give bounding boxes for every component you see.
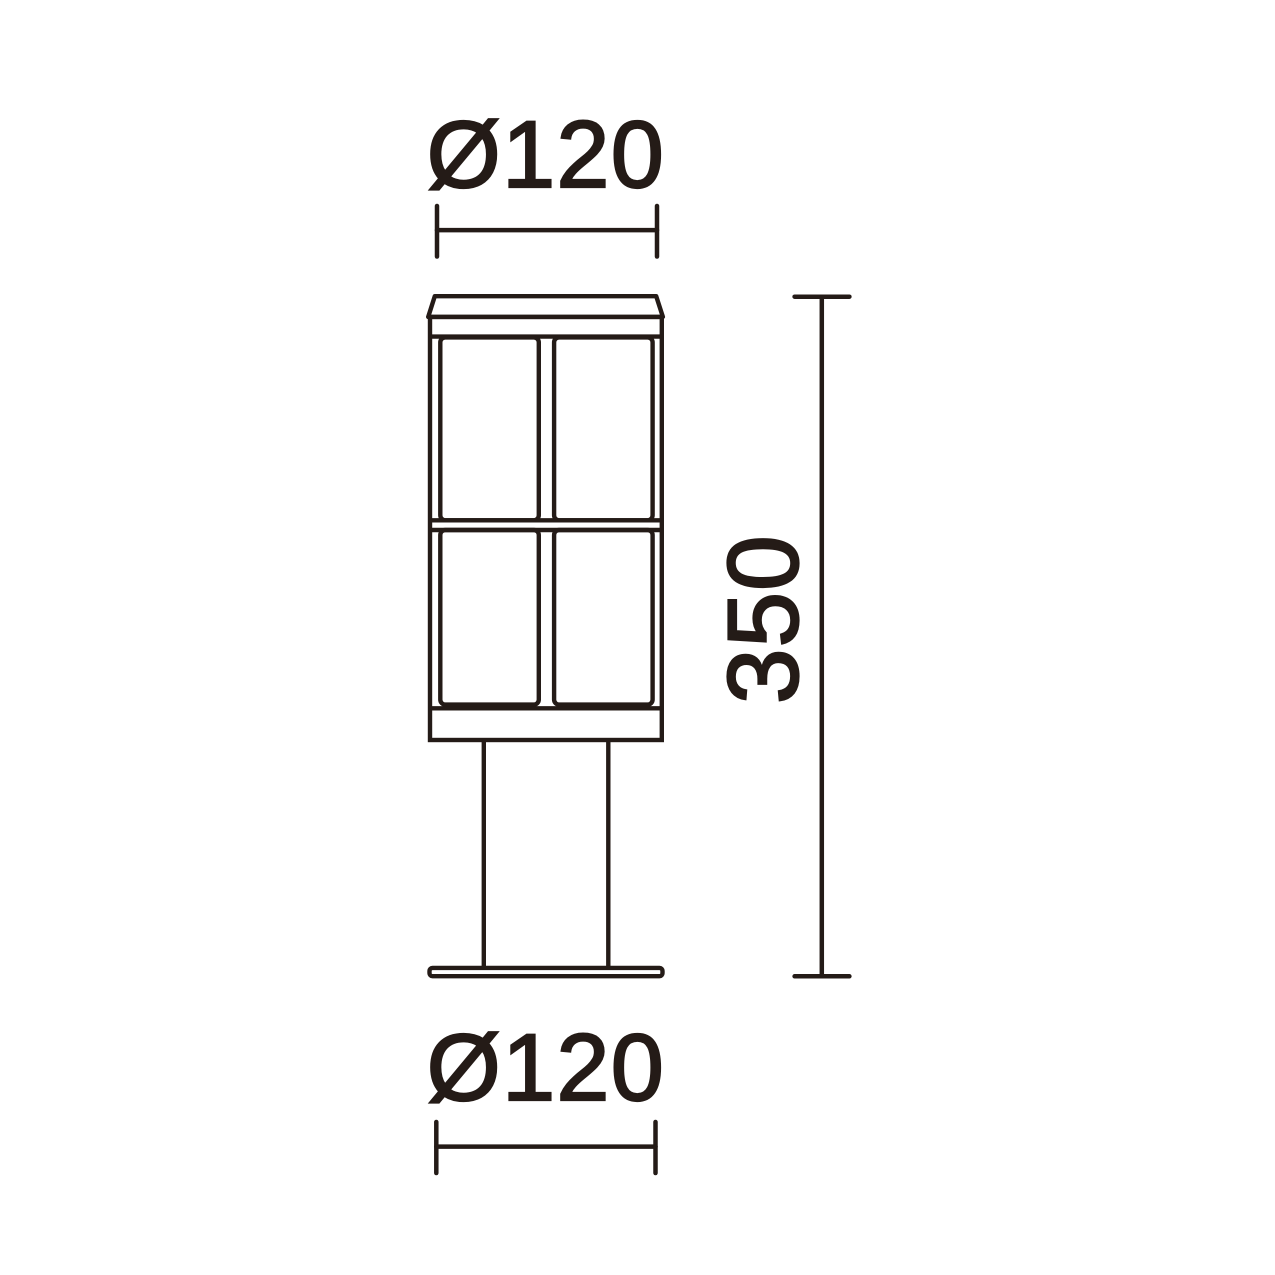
svg-text:Ø120: Ø120: [427, 102, 665, 208]
svg-text:350: 350: [708, 534, 820, 704]
svg-text:Ø120: Ø120: [427, 1015, 665, 1121]
